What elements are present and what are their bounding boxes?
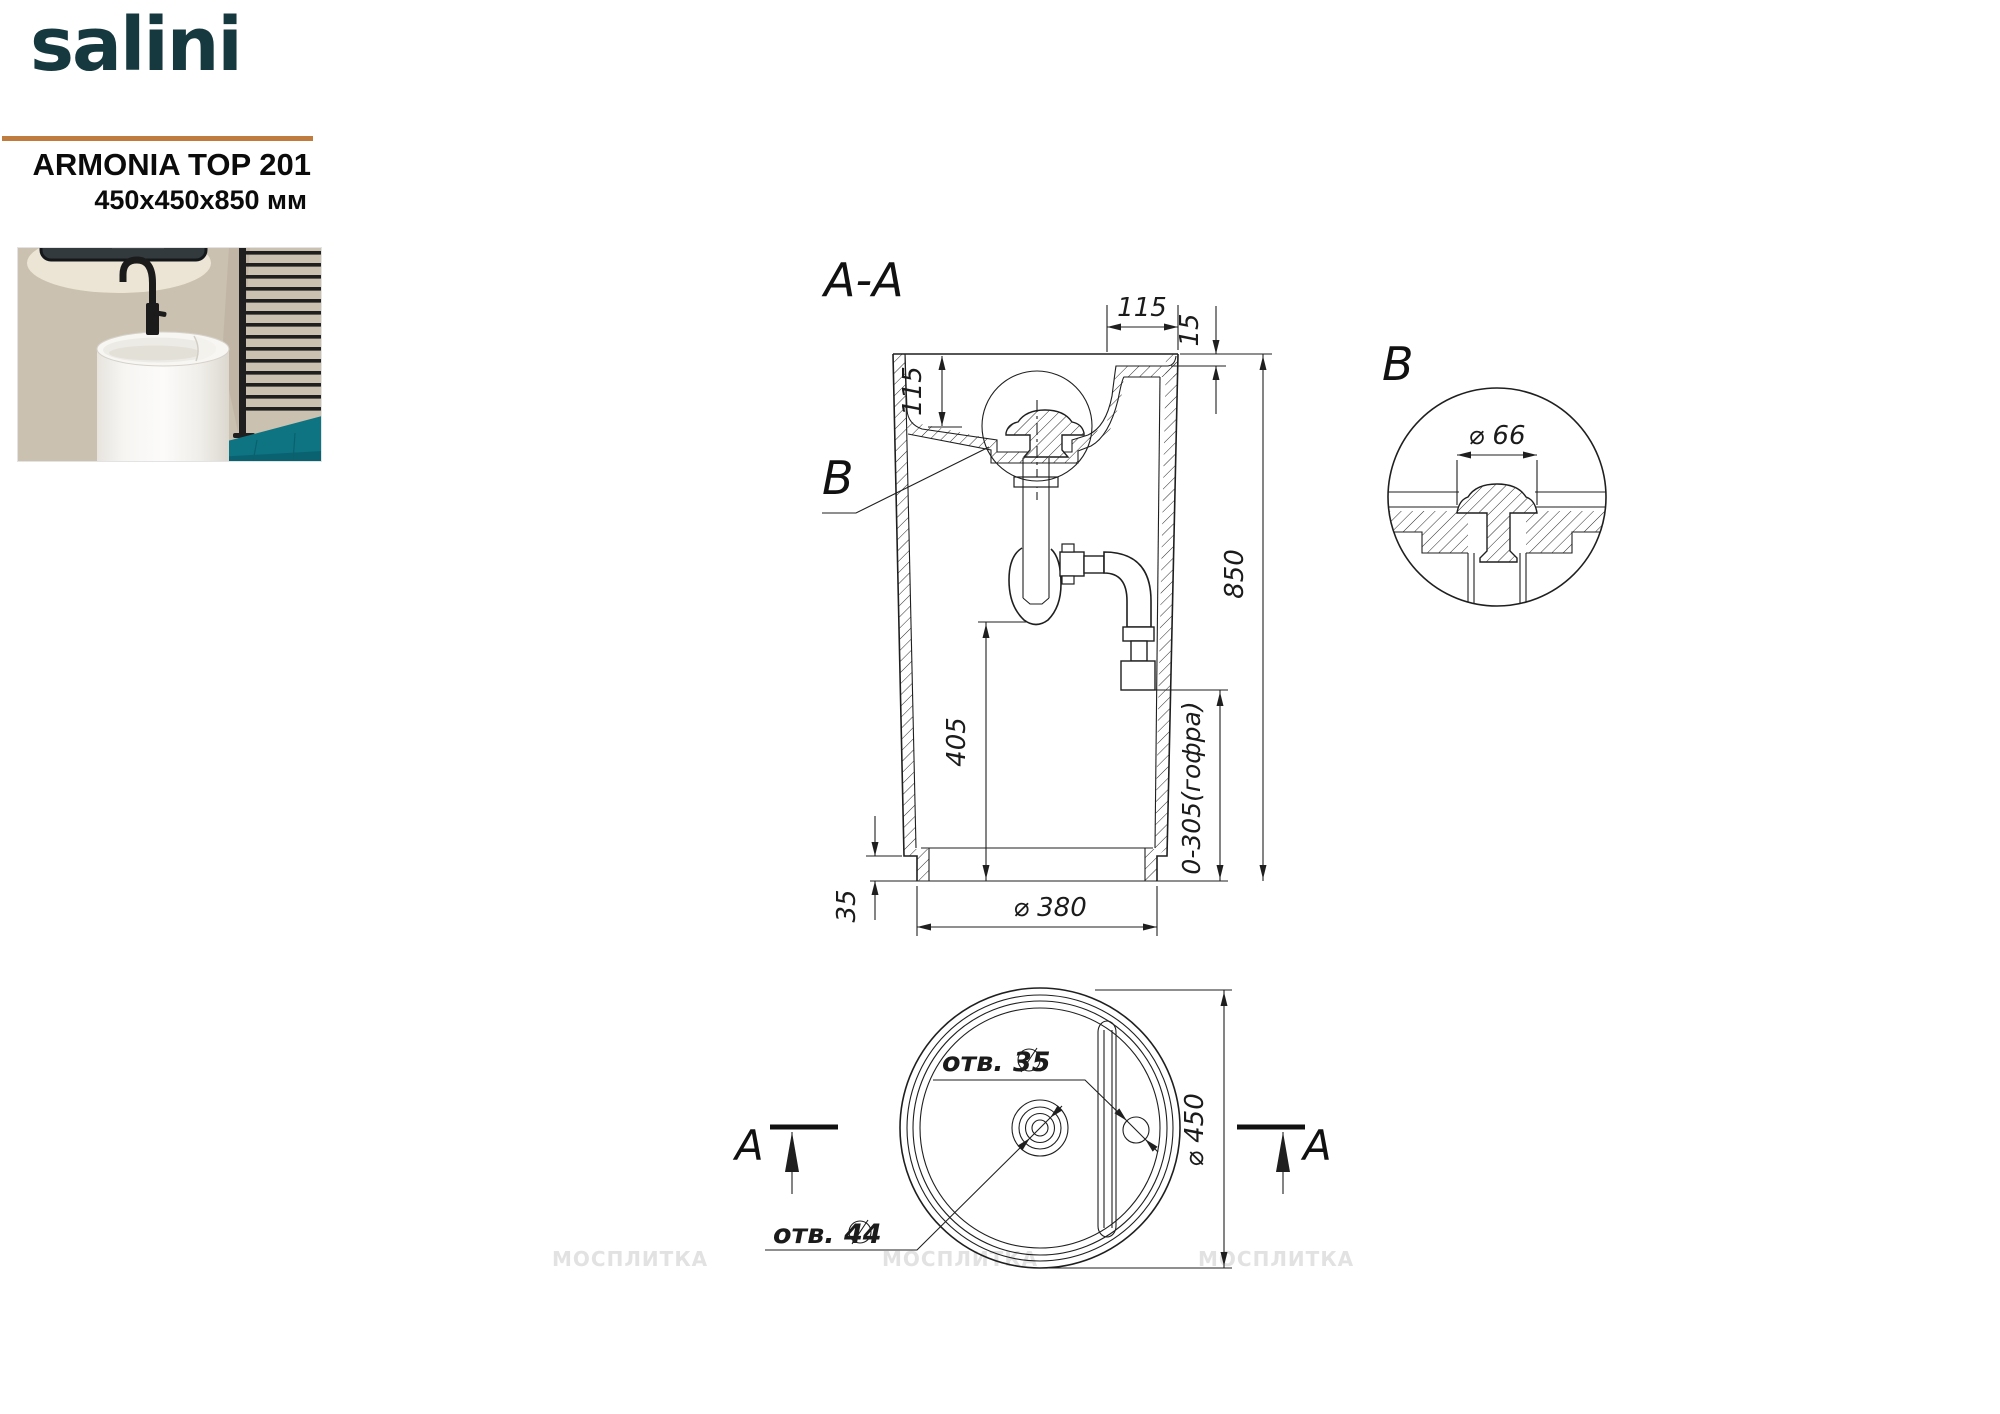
bowl-rightwall-hatch	[1088, 366, 1124, 446]
dim-foot-height: 35	[832, 816, 902, 923]
svg-text:115: 115	[898, 366, 928, 416]
section-title: A-A	[821, 253, 904, 307]
right-wall-hatch	[1155, 354, 1178, 849]
bottle-trap	[1009, 548, 1061, 625]
dim-bowl-depth: 115	[898, 356, 962, 427]
technical-drawing: МОСПЛИТКА МОСПЛИТКА МОСПЛИТКА A-A	[0, 0, 2000, 1414]
section-marker-left: A	[732, 1121, 838, 1194]
dim-base-diameter: ⌀ 380	[917, 886, 1157, 936]
section-marker-right: A	[1237, 1121, 1332, 1194]
svg-text:850: 850	[1220, 549, 1250, 599]
section-view: A-A	[821, 253, 1272, 936]
detail-view: B ⌀ 66	[1382, 337, 1607, 606]
dim-deck-width: 115	[1107, 293, 1178, 352]
svg-text:⌀ 66: ⌀ 66	[1468, 421, 1525, 451]
dim-outer-diameter: ⌀ 450	[1045, 990, 1232, 1268]
svg-text:405: 405	[942, 717, 972, 767]
svg-text:15: 15	[1175, 313, 1205, 346]
svg-text:A: A	[732, 1121, 764, 1170]
detail-title: B	[1382, 337, 1414, 391]
plan-deck-divider	[1098, 1021, 1116, 1237]
svg-text:⌀ 380: ⌀ 380	[1013, 893, 1087, 923]
outlet-elbow	[1060, 544, 1155, 690]
watermark: МОСПЛИТКА	[552, 1247, 708, 1271]
right-foot-hatch	[1145, 849, 1166, 881]
svg-text:A: A	[1300, 1121, 1332, 1170]
dim-trap-height: 405	[942, 622, 1026, 881]
svg-text:0-305(гофра): 0-305(гофра)	[1177, 701, 1206, 874]
plan-view: отв. 35 отв. 44 ⌀ 450	[732, 988, 1332, 1268]
detail-ref-label: B	[822, 451, 854, 505]
svg-text:35: 35	[832, 889, 862, 922]
dim-deck-recess: 15	[1171, 306, 1226, 414]
detail-drain-cap-hatch	[1457, 484, 1537, 562]
datasheet-page: salini ARMONIA TOP 201 450x450x850 мм	[0, 0, 2000, 1414]
foot-inner-lines	[921, 848, 1153, 881]
watermark: МОСПЛИТКА	[1198, 1247, 1354, 1271]
svg-text:115: 115	[1117, 293, 1167, 323]
svg-text:⌀ 450: ⌀ 450	[1180, 1093, 1210, 1167]
